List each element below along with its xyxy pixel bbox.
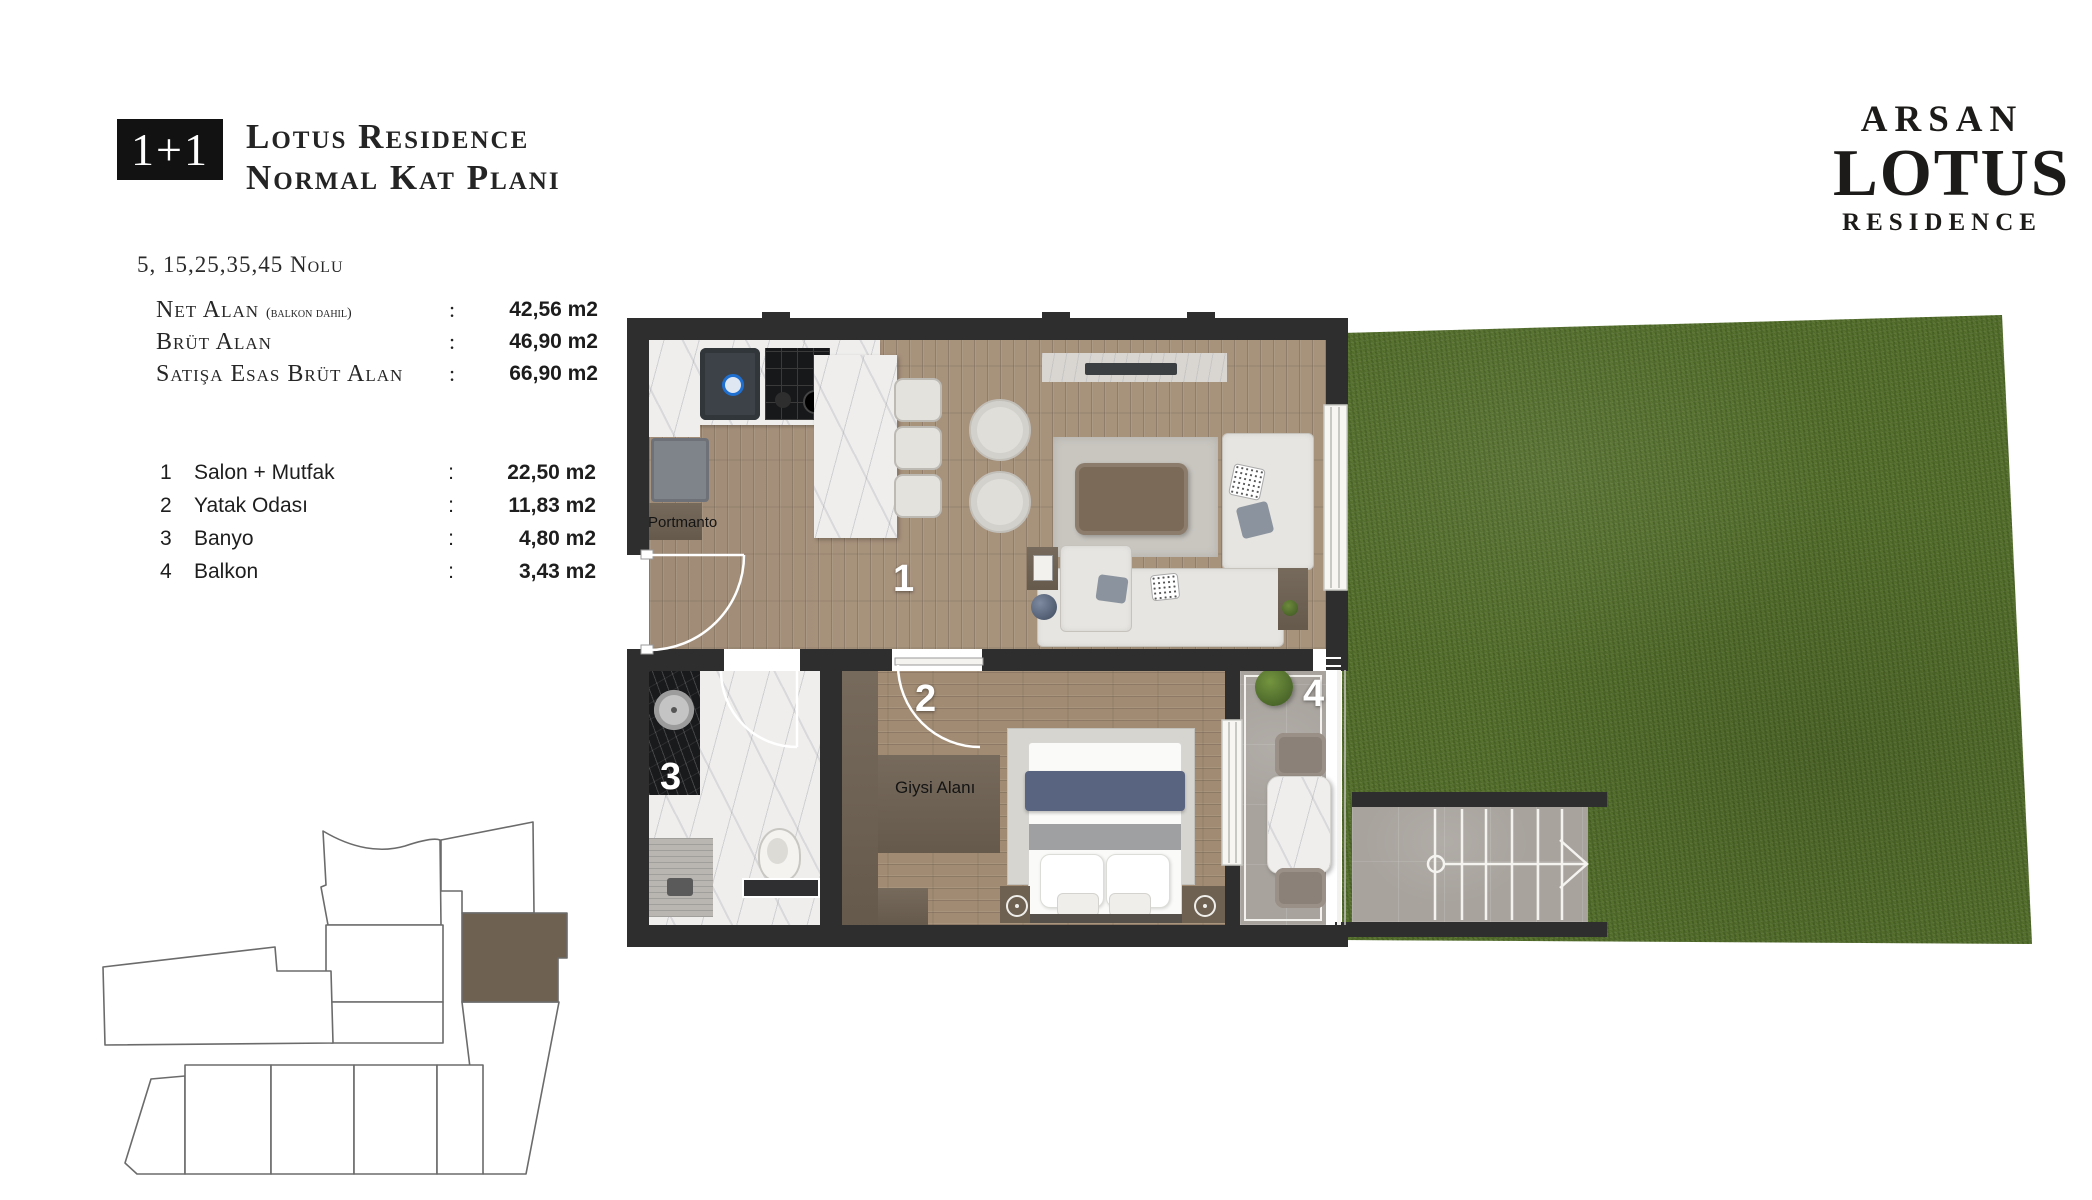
books [1033,555,1053,581]
keyplan-unit [321,831,441,925]
armchair [969,399,1031,461]
bar-chair [894,378,942,422]
balcony-plant-icon [1255,668,1293,706]
wall-pillar [1187,312,1215,320]
colon: : [436,461,466,485]
wall-bath-bedroom [820,649,842,947]
dressing-area-cabinet [878,755,1000,853]
colon: : [438,361,466,387]
colon: : [438,297,466,323]
page-title-line1: Lotus Residence [246,116,561,157]
colon: : [438,329,466,355]
area-label-text: Brüt Alan [156,329,272,355]
kitchen-island [814,355,897,538]
throw-pillow [1150,573,1181,602]
side-table [1027,547,1058,590]
bar-chair [894,474,942,518]
throw-pillow [1228,463,1266,501]
sofa-right-section [1222,433,1314,570]
keyplan-unit [329,1002,443,1043]
shower-seat [667,878,693,896]
wall-interior-h [1341,649,1348,671]
toilet-bowl [767,838,788,864]
area-label: Net Alan (balkon dahil) [156,297,438,324]
shower-area [649,838,713,917]
room-area-value: 4,80 m2 [466,527,596,551]
armchair [969,471,1031,533]
wall-bedroom-balcony-upper [1225,649,1240,720]
room-name: Yatak Odası [194,494,436,518]
tv [1085,363,1177,375]
brand-logo-residence: RESIDENCE [1833,209,2051,237]
room-number: 4 [160,560,194,584]
wall-top [627,318,1348,340]
wall-interior-h [627,649,724,671]
wall-interior-h [982,649,1313,671]
keyplan-highlighted-unit [462,913,567,1002]
room-list-table: 1 Salon + Mutfak : 22,50 m2 2 Yatak Odas… [160,456,596,588]
balcony-railing [1339,670,1345,925]
room-number: 3 [160,527,194,551]
keyplan-unit [354,1065,437,1174]
area-value: 66,90 m2 [466,362,598,386]
wall-right-upper [1326,318,1348,405]
portmanto-label: Portmanto [648,514,717,531]
room2-label: 2 [915,678,936,721]
area-label-note: (balkon dahil) [266,306,352,321]
dressing-area-label: Giysi Alanı [895,778,975,798]
wall-bedroom-balcony-lower [1225,865,1240,947]
area-label-text: Net Alan [156,297,259,323]
drain-icon [671,707,677,713]
wall-pillar [762,312,790,320]
coffee-table [1075,463,1188,535]
page-title: Lotus Residence Normal Kat Planı [246,116,561,198]
room-area-value: 22,50 m2 [466,461,596,485]
kitchen-counter-left [649,340,700,437]
bed-runner [1025,771,1185,811]
faucet-icon [722,374,744,396]
brand-logo: ARSAN LOTUS RESIDENCE [1833,98,2051,237]
keyplan-unit [326,925,443,1002]
area-value: 42,56 m2 [466,298,598,322]
tray-table [1031,594,1057,620]
bed-blanket-band [1029,824,1181,850]
room-name: Banyo [194,527,436,551]
fan-icon [1006,895,1028,917]
area-label: Brüt Alan [156,329,438,356]
unit-numbers: 5, 15,25,35,45 Nolu [137,252,344,278]
keyplan-unit [437,1065,483,1174]
throw-pillow [1095,574,1128,604]
wall-interior-h [800,649,892,671]
room4-label: 4 [1303,673,1324,716]
stair-landing [1352,807,1588,922]
window-living-room [1324,405,1347,590]
exterior-stairs [1335,790,1615,940]
keyplan-unit [271,1065,354,1174]
room-area-value: 3,43 m2 [466,560,596,584]
room-number: 1 [160,461,194,485]
floor-plan: Portmanto [627,318,1348,947]
balcony-bench [1275,868,1326,908]
room-area-value: 11,83 m2 [466,494,596,518]
keyplan-unit [441,822,534,913]
burner-icon [775,392,791,408]
nightstand [1000,886,1030,923]
bathroom-sink [654,690,694,730]
bed [1028,742,1182,919]
wall-left-upper [627,318,649,555]
portmanto-bench [651,438,709,502]
room1-label: 1 [893,558,914,601]
keyplan-unit [125,1076,185,1174]
unit-type-badge: 1+1 [117,119,223,180]
floor-plan-sheet: 1+1 Lotus Residence Normal Kat Planı 5, … [0,0,2092,1200]
bar-chair [894,426,942,470]
colon: : [436,527,466,551]
room-number: 2 [160,494,194,518]
wardrobe-column [842,671,878,925]
brand-logo-lotus: LOTUS [1833,141,2051,205]
area-label-text: Satışa Esas Brüt Alan [156,361,403,387]
site-key-plan [85,795,590,1185]
room-name: Balkon [194,560,436,584]
colon: : [436,494,466,518]
stair-wall-bottom [1335,922,1607,937]
toilet [758,828,801,882]
brand-logo-arsan: ARSAN [1833,98,2051,141]
console-table [1278,568,1308,630]
area-summary-table: Net Alan (balkon dahil) : 42,56 m2 Brüt … [156,294,598,390]
balcony-bench [1275,733,1326,777]
wall-left-lower [627,650,649,947]
balcony-table [1267,776,1331,874]
stair-wall-top [1352,792,1607,807]
window-bedroom [1222,720,1242,865]
keyplan-unit [185,1065,271,1174]
page-title-line2: Normal Kat Planı [246,157,561,198]
wardrobe-base [878,888,928,925]
plant-icon [1282,600,1298,616]
headboard [1022,914,1187,923]
bathroom-vanity [742,878,820,898]
kitchen-sink [700,348,760,420]
colon: : [436,560,466,584]
wall-pillar [1042,312,1070,320]
area-label: Satışa Esas Brüt Alan [156,361,438,388]
area-value: 46,90 m2 [466,330,598,354]
room3-label: 3 [660,756,681,799]
nightstand [1182,886,1225,923]
room-name: Salon + Mutfak [194,461,436,485]
keyplan-unit [103,947,333,1045]
fan-icon [1194,895,1216,917]
